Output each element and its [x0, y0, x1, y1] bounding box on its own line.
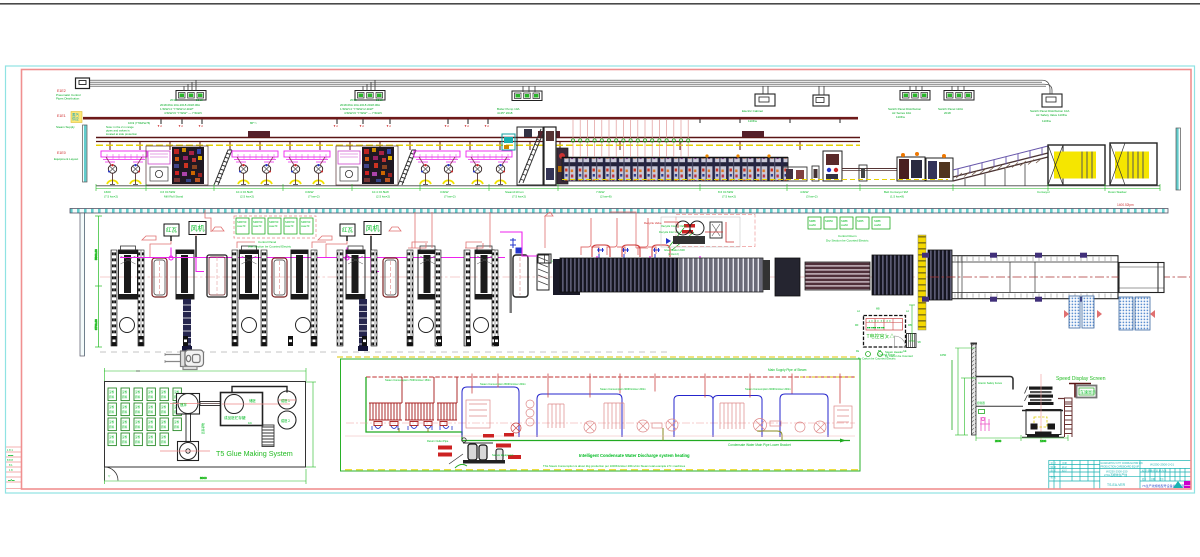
- svg-text:淀粉: 淀粉: [109, 405, 115, 409]
- svg-text:Control Room: Control Room: [838, 234, 857, 238]
- svg-text:FE: FE: [856, 350, 859, 353]
- svg-text:制 图: 制 图: [1051, 465, 1057, 469]
- svg-text:▼d: ▼d: [484, 124, 489, 128]
- svg-text:case70: case70: [269, 224, 278, 228]
- svg-text:淀粉: 淀粉: [135, 405, 141, 409]
- svg-text:Dry Section be Counted Electri: Dry Section be Counted Electric: [826, 239, 869, 243]
- svg-text:case70: case70: [301, 224, 310, 228]
- svg-text:LA: LA: [857, 310, 860, 313]
- svg-text:SR6700: SR6700: [301, 220, 311, 224]
- svg-text:2018: 2018: [376, 98, 383, 102]
- svg-text:110Kw: 110Kw: [1042, 119, 1052, 123]
- svg-text:MB: MB: [876, 308, 880, 311]
- svg-text:校对: 校对: [1062, 465, 1067, 469]
- svg-text:110Kw: 110Kw: [896, 115, 906, 119]
- svg-text:4.6kW: 4.6kW: [800, 190, 809, 194]
- svg-text:(7.5 kw×2): (7.5 kw×2): [722, 195, 736, 199]
- svg-text:1 8: 1 8: [9, 468, 13, 472]
- svg-text:T5 Glue Making System: T5 Glue Making System: [216, 449, 293, 458]
- svg-text:熔胚２: 熔胚２: [281, 418, 291, 423]
- svg-text:Main Supply Pipe of Steam: Main Supply Pipe of Steam: [768, 368, 807, 372]
- svg-text:Return Outlet Pipe: Return Outlet Pipe: [427, 439, 449, 443]
- svg-text:原料: 原料: [148, 440, 154, 444]
- svg-text:3.6 ±0.5kW: 3.6 ±0.5kW: [160, 190, 175, 194]
- svg-text:GE: GE: [903, 350, 907, 353]
- svg-text:(3 kw×2): (3 kw×2): [806, 195, 818, 199]
- svg-text:Air Safety Valve 110Kw: Air Safety Valve 110Kw: [1036, 113, 1068, 117]
- svg-text:E1E1: E1E1: [57, 114, 66, 118]
- svg-text:(7 kw×2): (7 kw×2): [444, 195, 456, 199]
- svg-text:86°〜: 86°〜: [250, 121, 257, 125]
- svg-text:Sensor Equipment: Sensor Equipment: [492, 453, 514, 457]
- svg-text:淀粉: 淀粉: [148, 420, 154, 424]
- svg-text:Steam Consumption 700KG/Hour 1: Steam Consumption 700KG/Hour 150m: [385, 378, 431, 382]
- svg-text:SR6700: SR6700: [285, 220, 295, 224]
- svg-text:标记: 标记: [1062, 469, 1067, 473]
- svg-text:10t: 10t: [248, 421, 252, 425]
- svg-text:原料: 原料: [135, 395, 141, 399]
- svg-text:Steam±10 ton: Steam±10 ton: [505, 190, 524, 194]
- svg-text:SR65: SR65: [857, 219, 864, 223]
- svg-text:1600: 1600: [104, 190, 111, 194]
- svg-text:原料: 原料: [174, 425, 180, 429]
- svg-text:8000: 8000: [200, 476, 207, 480]
- svg-text:▼d: ▼d: [198, 124, 203, 128]
- svg-text:Steam Consumption 900KG/Hour 2: Steam Consumption 900KG/Hour 200m: [600, 387, 646, 391]
- svg-text:SR6700: SR6700: [253, 220, 263, 224]
- svg-text:Electric Cabinet: Electric Cabinet: [742, 109, 763, 113]
- svg-text:供应: 供应: [72, 116, 79, 121]
- svg-text:8.6 ±0.5kW: 8.6 ±0.5kW: [718, 190, 733, 194]
- svg-text:原料: 原料: [122, 395, 128, 399]
- svg-text:4×45° 2018: 4×45° 2018: [497, 111, 513, 115]
- svg-text:原料: 原料: [122, 425, 128, 429]
- svg-text:原料: 原料: [148, 425, 154, 429]
- svg-text:case70: case70: [237, 224, 246, 228]
- svg-text:1019 (770kPa/76): 1019 (770kPa/76): [128, 121, 150, 125]
- svg-text:淀粉: 淀粉: [148, 435, 154, 439]
- svg-text:搅拌: 搅拌: [180, 402, 187, 407]
- svg-text:Steam Consumption 600KG/Hour 2: Steam Consumption 600KG/Hour 200m: [745, 387, 791, 391]
- svg-text:▼d: ▼d: [464, 124, 469, 128]
- svg-text:▬▬: ▬▬: [8, 454, 14, 457]
- svg-text:Steam Supply: Steam Supply: [56, 125, 75, 129]
- svg-text:Speed Display Screen: Speed Display Screen: [1056, 376, 1106, 382]
- svg-text:原料: 原料: [109, 440, 115, 444]
- svg-text:cas60: cas60: [841, 223, 848, 227]
- svg-text:Pipes Distribution: Pipes Distribution: [56, 97, 80, 101]
- svg-text:SR6700: SR6700: [269, 220, 279, 224]
- svg-text:2018: 2018: [944, 111, 951, 115]
- svg-text:SR650: SR650: [825, 219, 833, 223]
- svg-text:(2 kw×8): (2 kw×8): [600, 195, 612, 199]
- svg-text:1800: 1800: [1040, 439, 1047, 443]
- svg-text:MF: MF: [855, 324, 859, 327]
- svg-text:Belt Conveyor 9M: Belt Conveyor 9M: [884, 190, 908, 194]
- svg-text:原料: 原料: [109, 410, 115, 414]
- svg-text:8 1: 8 1: [9, 463, 13, 467]
- svg-text:T电控官ㄆ△: T电控官ㄆ△: [867, 333, 895, 340]
- svg-text:1400.52lpm: 1400.52lpm: [1117, 203, 1134, 207]
- svg-text:原料: 原料: [122, 410, 128, 414]
- svg-text:This Steam Consumption is abou: This Steam Consumption is about 2kg prod…: [543, 464, 686, 468]
- svg-text:原料: 原料: [109, 425, 115, 429]
- svg-text:淀粉: 淀粉: [135, 390, 141, 394]
- svg-text:(7 kw×2): (7 kw×2): [308, 195, 320, 199]
- svg-text:原料: 原料: [135, 440, 141, 444]
- svg-text:日期: 日期: [1062, 461, 1067, 465]
- svg-text:2.5m瓦楷线生产线: 2.5m瓦楷线生产线: [1104, 473, 1127, 477]
- svg-text:淀粉: 淀粉: [148, 405, 154, 409]
- svg-text:原料: 原料: [161, 440, 167, 444]
- svg-text:淀粉: 淀粉: [135, 420, 141, 424]
- svg-text:10.4 ±0.5kW: 10.4 ±0.5kW: [372, 190, 389, 194]
- svg-text:SR6700: SR6700: [237, 220, 247, 224]
- svg-text:淀粉: 淀粉: [148, 390, 154, 394]
- svg-text:SR88: SR88: [874, 219, 881, 223]
- svg-text:淀粉: 淀粉: [109, 435, 115, 439]
- svg-text:(2.5 kw×2): (2.5 kw×2): [240, 195, 254, 199]
- svg-text:原料: 原料: [161, 425, 167, 429]
- svg-text:PRODUCTION CARDBOARD EQUIP: PRODUCTION CARDBOARD EQUIP: [1101, 466, 1140, 469]
- svg-text:淀粉: 淀粉: [122, 390, 128, 394]
- svg-text:3.6kW: 3.6kW: [305, 190, 314, 194]
- svg-text:Mill Roll Stand: Mill Roll Stand: [164, 195, 184, 199]
- svg-text:4.5kW×6 "7.5kW" — 7.5kW×: 4.5kW×6 "7.5kW" — 7.5kW×: [344, 111, 383, 115]
- svg-text:淀粉: 淀粉: [109, 420, 115, 424]
- svg-text:Intelligent Condensate Water D: Intelligent Condensate Water Discharge s…: [579, 453, 690, 458]
- svg-text:By Carton be Counted: By Carton be Counted: [885, 354, 913, 358]
- svg-text:cas60: cas60: [809, 223, 816, 227]
- svg-text:10.4 ±0.5kW: 10.4 ±0.5kW: [236, 190, 253, 194]
- svg-text:cas60: cas60: [874, 223, 881, 227]
- svg-text:WJ250-2500-2-01: WJ250-2500-2-01: [1150, 463, 1174, 467]
- svg-text:淀粉: 淀粉: [174, 420, 180, 424]
- svg-text:3.6kW: 3.6kW: [440, 190, 449, 194]
- svg-text:▼d: ▼d: [444, 124, 449, 128]
- svg-text:GUANGZHOU CITY CORRUGATOR LIN: GUANGZHOU CITY CORRUGATOR LIN: [1101, 462, 1143, 465]
- svg-text:原料: 原料: [148, 395, 154, 399]
- svg-text:Down Stacker: Down Stacker: [1108, 190, 1127, 194]
- svg-text:110Kw: 110Kw: [748, 119, 758, 123]
- svg-text:成品胚贮存罐: 成品胚贮存罐: [224, 415, 246, 420]
- svg-text:Equipment Layout: Equipment Layout: [54, 157, 78, 161]
- svg-text:(2.5 kw×2): (2.5 kw×2): [376, 195, 390, 199]
- svg-text:2018: 2018: [196, 98, 203, 102]
- svg-text:淀粉: 淀粉: [161, 420, 167, 424]
- svg-text:设 计: 设 计: [1051, 461, 1057, 465]
- svg-text:原料: 原料: [148, 410, 154, 414]
- svg-text:5800.00: 5800.00: [94, 249, 98, 260]
- svg-text:located at side protection: located at side protection: [106, 132, 138, 136]
- svg-text:原料: 原料: [135, 425, 141, 429]
- svg-text:淀粉: 淀粉: [161, 390, 167, 394]
- svg-text:SR88: SR88: [809, 219, 816, 223]
- svg-text:7.6kW: 7.6kW: [596, 190, 605, 194]
- svg-text:控制器: 控制器: [977, 401, 985, 405]
- svg-text:▼d: ▼d: [333, 124, 338, 128]
- svg-text:8 8 8: 8 8 8: [7, 458, 13, 462]
- svg-text:输送管道: 输送管道: [201, 423, 205, 434]
- svg-text:１０ ２０ ３０ ４０: １０ ２０ ３０ ４０: [868, 320, 891, 323]
- svg-text:(7.5 kw×2): (7.5 kw×2): [104, 195, 118, 199]
- svg-text:淀粉: 淀粉: [161, 435, 167, 439]
- svg-text:LA: LA: [906, 310, 909, 313]
- svg-text:2000: 2000: [995, 439, 1002, 443]
- svg-text:熔胚１: 熔胚１: [281, 398, 291, 403]
- svg-text:6700.00: 6700.00: [94, 319, 98, 330]
- svg-text:原料: 原料: [122, 440, 128, 444]
- svg-text:淀粉: 淀粉: [135, 435, 141, 439]
- svg-text:▬8▬: ▬8▬: [8, 478, 15, 482]
- svg-text:SR88: SR88: [841, 219, 848, 223]
- svg-text:淀粉: 淀粉: [122, 435, 128, 439]
- svg-text:Interior Safety Fence: Interior Safety Fence: [978, 381, 1003, 385]
- svg-text:原料: 原料: [161, 410, 167, 414]
- svg-text:审 核: 审 核: [1051, 469, 1057, 473]
- svg-text:Control Panel: Control Panel: [258, 240, 277, 244]
- svg-text:淀粉: 淀粉: [122, 420, 128, 424]
- svg-text:Recycle Valve: Recycle Valve: [644, 221, 662, 225]
- svg-text:▼d: ▼d: [359, 124, 364, 128]
- svg-text:4.5kW×6 "7.5kW" — 7.5kW×: 4.5kW×6 "7.5kW" — 7.5kW×: [164, 111, 203, 115]
- svg-text:2018: 2018: [350, 98, 357, 102]
- svg-text:case70: case70: [285, 224, 294, 228]
- svg-text:红瓦: 红瓦: [342, 226, 354, 234]
- svg-text:2018: 2018: [170, 98, 177, 102]
- svg-text:case70: case70: [253, 224, 262, 228]
- svg-text:原料: 原料: [135, 410, 141, 414]
- svg-text:签 名: 签 名: [1051, 475, 1057, 479]
- svg-text:原料: 原料: [161, 395, 167, 399]
- svg-text:Wet Section be Counted Electri: Wet Section be Counted Electric: [248, 245, 292, 249]
- svg-text:储胚: 储胚: [249, 398, 256, 403]
- svg-text:Steam Consumption 800KG/Hour 2: Steam Consumption 800KG/Hour 200m: [480, 382, 526, 386]
- svg-text:淀粉: 淀粉: [161, 405, 167, 409]
- svg-text:■■ ■■■ ■■ ■■: ■■ ■■■ ■■ ■■: [867, 326, 885, 330]
- svg-text:Conveyor: Conveyor: [1037, 190, 1050, 194]
- svg-text:(1.5 kw×8): (1.5 kw×8): [890, 195, 904, 199]
- svg-text:SB: SB: [918, 341, 922, 344]
- svg-text:E1E0: E1E0: [57, 151, 66, 155]
- svg-text:▼d: ▼d: [157, 124, 162, 128]
- svg-text:MB: MB: [908, 324, 912, 327]
- svg-text:原料: 原料: [109, 395, 115, 399]
- svg-text:1 8 1: 1 8 1: [7, 448, 13, 452]
- svg-text:车速显示: 车速显示: [1080, 389, 1096, 395]
- svg-text:淀粉: 淀粉: [109, 390, 115, 394]
- svg-text:Recycle Control Valve: Recycle Control Valve: [661, 224, 687, 228]
- svg-text:(2 kw×2): (2 kw×2): [668, 252, 679, 256]
- svg-text:▼d: ▼d: [178, 124, 183, 128]
- svg-text:TS-EA-VER: TS-EA-VER: [1107, 483, 1126, 487]
- svg-text:▼d: ▼d: [386, 124, 391, 128]
- svg-text:红瓦: 红瓦: [166, 226, 178, 234]
- svg-text:1650: 1650: [940, 353, 947, 357]
- svg-text:淀粉: 淀粉: [122, 405, 128, 409]
- svg-text:Condensate Water Main Pipe Low: Condensate Water Main Pipe Lower Bracket: [728, 443, 791, 447]
- svg-text:(7.5 kw×2): (7.5 kw×2): [512, 195, 526, 199]
